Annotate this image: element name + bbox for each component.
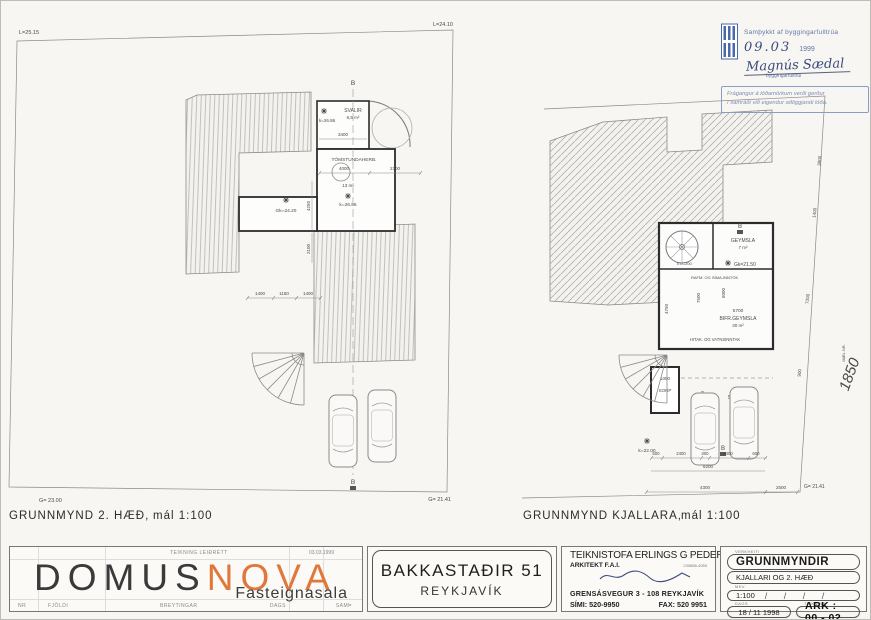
left-floor-plan: L=25.15 L=24.10 G= 23.00 G= 21.41 k=26.8… [9,22,453,522]
fan-stair [252,353,304,405]
utility-label: HITAK. OG VATNSINNTAK [690,337,741,342]
architect-role: ARKITEKT F.A.I. [570,562,620,569]
dim-label: 900 [797,368,803,376]
level-mark-icon [345,193,351,199]
section-marker: B [738,224,742,230]
dim-label: 4750 [664,303,669,314]
drawing-scale-label: MKV. [735,584,860,589]
fire-rating-label: EI-C200 [677,261,692,266]
project-address: BAKKASTAÐIR 51 [381,561,543,581]
right-floor-plan: GEYMSLA 7 m² Gk=21.50 EI-C200 RAFM. OG S… [522,96,864,522]
project-address-block: BAKKASTAÐIR 51 REYKJAVÍK [367,546,557,612]
lot-level-label: G= 23.00 [39,498,62,504]
drawing-heading: GRUNNMYNDIR [727,554,860,570]
dim-label: 7200 [804,293,810,304]
approval-stamp: Samþykkt af byggingarfulltrúa 09.031999 … [721,23,869,113]
dim-label: 3400 [338,132,349,137]
architectural-drawing-sheet: L=25.15 L=24.10 G= 23.00 G= 21.41 k=26.8… [0,0,871,620]
dim-label: 500 [652,451,660,456]
drawing-date: 18 / 11 1998 [727,606,791,618]
logo-subtitle: Fasteignasala [235,585,348,603]
drawing-info-block: VERKHEITI GRUNNMYNDIR KJALLARI OG 2. HÆÐ… [720,546,867,612]
level-mark-icon [283,197,289,203]
dim-label: 600 [752,451,760,456]
plan-scale: mál 1:100 [153,510,213,522]
stamp-approved-text: Samþykkt af byggingarfulltrúa [744,29,850,36]
architect-fax: FAX: 520 9951 [659,600,707,609]
room-label: SORP [659,388,672,393]
level-label: k=26.86 [339,202,357,208]
level-label: k=26.86 [319,118,336,123]
dim-label: 7500 [696,292,701,303]
stamp-signature: Magnús Sædal [744,56,851,76]
car-icon [329,395,357,467]
drawing-scale-value: 1:100 [736,591,755,600]
plan-title: GRUNNMYND 2. HÆÐ, [9,510,149,522]
col-breytingar-label: BREYTINGAR [160,603,198,609]
room-label: GEYMSLA [731,238,756,244]
reykjavik-coat-of-arms-icon [721,23,738,61]
roof-hatch [186,92,311,274]
plan-scale: mál 1:100 [681,510,741,522]
dim-label: 2400 [676,451,686,456]
dim-label: 2400 [723,451,733,456]
level-label: Gk=21.50 [734,262,756,268]
level-mark-icon [725,260,731,266]
stamp-note-line2: í samráði við eigendur aðliggjandi lóða. [727,99,863,108]
architect-firm: TEIKNISTOFA ERLINGS G PEDERSEN [570,550,707,561]
dim-label: 2500 [776,485,787,490]
room-area-label: 30 m² [732,323,744,328]
section-marker: B [351,479,355,486]
dim-label: 1400 [811,207,817,218]
dim-label: 2300 [390,166,401,171]
stamp-note: Frágangur á lóðamörkum verði gerður í sa… [721,86,869,113]
tree-symbol [372,108,412,148]
dim-label: 4000 [339,166,350,171]
room-label: TÓMSTUNDAHERB. [331,156,376,163]
dim-label: 4250 [306,200,311,211]
dim-label: 2100 [306,243,311,254]
dim-label: 1400 [303,291,314,296]
lot-level-label: L=25.15 [19,30,39,36]
architect-signature [598,569,693,583]
spiral-stair-icon [666,231,698,263]
dim-label: 300 [701,451,709,456]
revision-date: 03.03.1999 [309,550,334,556]
project-address-frame: BAKKASTAÐIR 51 REYKJAVÍK [372,550,552,608]
room-area-label: 7 m² [739,245,749,250]
level-mark-icon [321,108,327,114]
revision-note: TEIKNING LEIÐRÉTT [170,550,228,556]
lot-level-label: G= 21.41 [428,497,451,503]
logo-word-domus: DOMUS [34,557,207,598]
dim-label: 1150 [279,291,289,296]
drawing-number: ARK : 00 - 02 [796,606,860,618]
dim-label: 1400 [255,291,266,296]
col-samth-label: SAMÞ [336,603,352,609]
survey-number-label: MÆL.NR. [841,344,846,362]
roof-hatch [314,224,415,363]
lot-level-label: G= 21.41 [804,484,825,490]
dim-label: 3800 [816,155,822,166]
plan-title: GRUNNMYND KJALLARA, [523,510,682,522]
stamp-note-line1: Frágangur á lóðamörkum verði gerður [727,90,863,99]
col-nr-label: NR [18,603,26,609]
car-icon [368,390,396,462]
section-flag [350,486,356,490]
room-area-label: 13 m² [342,183,354,188]
architect-block: TEIKNISTOFA ERLINGS G PEDERSEN ARKITEKT … [561,546,716,612]
section-flag [737,230,743,234]
section-marker: B [351,80,355,87]
stamp-date-handwritten: 09.03 [744,40,791,55]
drawing-subheading: KJALLARI OG 2. HÆÐ [727,571,860,584]
architect-phone: SÍMI: 520-9950 [570,600,620,609]
domusnova-logo-block: TEIKNING LEIÐRÉTT 03.03.1999 DOMUSNOVA F… [9,546,363,612]
utility-label: RAFM. OG SÍMA-INNTÖK [691,275,738,280]
car-icon [730,387,758,459]
col-dags-label: DAGS [270,603,286,609]
stamp-year: 1999 [799,46,815,53]
level-label: Gk=24.20 [276,208,297,214]
project-city: REYKJAVÍK [420,584,503,598]
dim-label: 6000 [721,287,726,298]
col-fjoldi-label: FJÖLDI [48,603,68,609]
dim-label: 4300 [700,485,711,490]
architect-address: GRENSÁSVEGUR 3 - 108 REYKJAVÍK [570,589,707,598]
dim-label: 6200 [703,464,714,469]
level-mark-icon [644,438,650,444]
title-block: TEIKNING LEIÐRÉTT 03.03.1999 DOMUSNOVA F… [1,546,871,614]
room-label: BIFR.GEYMSLA [720,316,758,322]
revision-check-marks: / / / / [765,591,825,601]
architect-reg-number: 230858-4059 [683,563,707,568]
lot-level-label: L=24.10 [433,22,453,28]
stamp-date: 09.031999 [744,38,850,56]
dim-label: 5700 [733,308,744,314]
